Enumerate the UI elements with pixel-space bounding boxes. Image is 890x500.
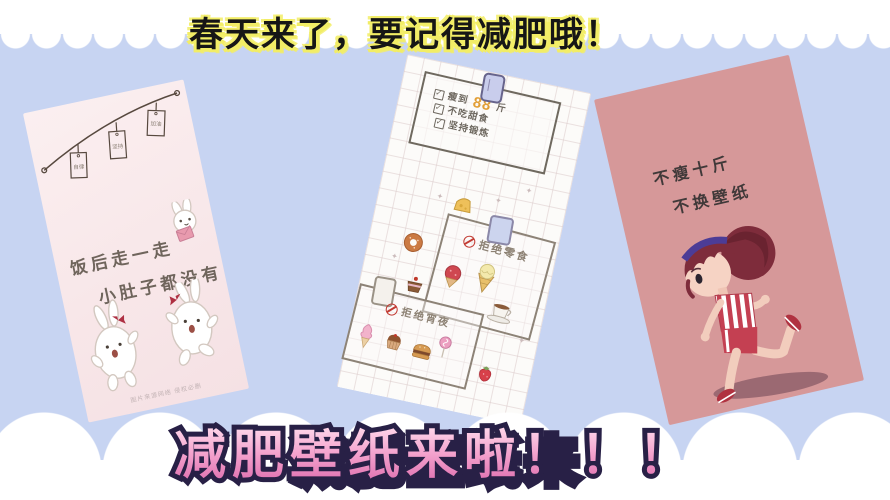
banner-text-stack: 减肥壁纸来啦！！！ 减肥壁纸来啦！！！ 减肥壁纸来啦！！！: [174, 413, 696, 488]
goal-weight-unit: 斤: [495, 102, 508, 116]
cake-icon: [402, 273, 428, 297]
sprinkle-icon: ✦: [390, 251, 398, 261]
running-girl-icon: [651, 203, 850, 424]
banner-fill-layer: 减肥壁纸来啦！！！: [174, 427, 696, 485]
sprinkle-icon: ✦: [494, 196, 502, 206]
donut-icon: [400, 229, 426, 255]
checkbox-icon: [433, 89, 445, 101]
sprinkle-icon: ✦: [525, 186, 533, 196]
wallpaper-card-checklist: 瘦到 88 斤 不吃甜食 坚持锻炼 拒绝零食: [337, 54, 592, 426]
poster: 自律 坚持 加油 饭后: [0, 0, 890, 500]
page-title: 春天来了，要记得减肥哦！: [0, 7, 850, 56]
sprinkle-icon: ✦: [517, 336, 525, 346]
sprinkle-icon: ✦: [436, 191, 444, 201]
checkbox-icon: [433, 118, 445, 130]
goal-note: 瘦到 88 斤 不吃甜食 坚持锻炼: [408, 71, 561, 175]
wallpaper-card-walk: 自律 坚持 加油 饭后: [23, 79, 249, 422]
right-quote: 不瘦十斤 不换壁纸: [651, 146, 754, 221]
checkbox-icon: [433, 103, 445, 115]
strawberry-icon: [475, 364, 495, 384]
wallpaper-card-runner: 不瘦十斤 不换壁纸: [594, 55, 864, 425]
bottom-banner: 减肥壁纸来啦！！！ 减肥壁纸来啦！！！ 减肥壁纸来啦！！！: [0, 413, 890, 488]
hanging-tags-icon: 自律 坚持 加油: [29, 88, 201, 210]
note-clip-icon: [479, 72, 506, 104]
cheese-icon: [452, 193, 475, 215]
